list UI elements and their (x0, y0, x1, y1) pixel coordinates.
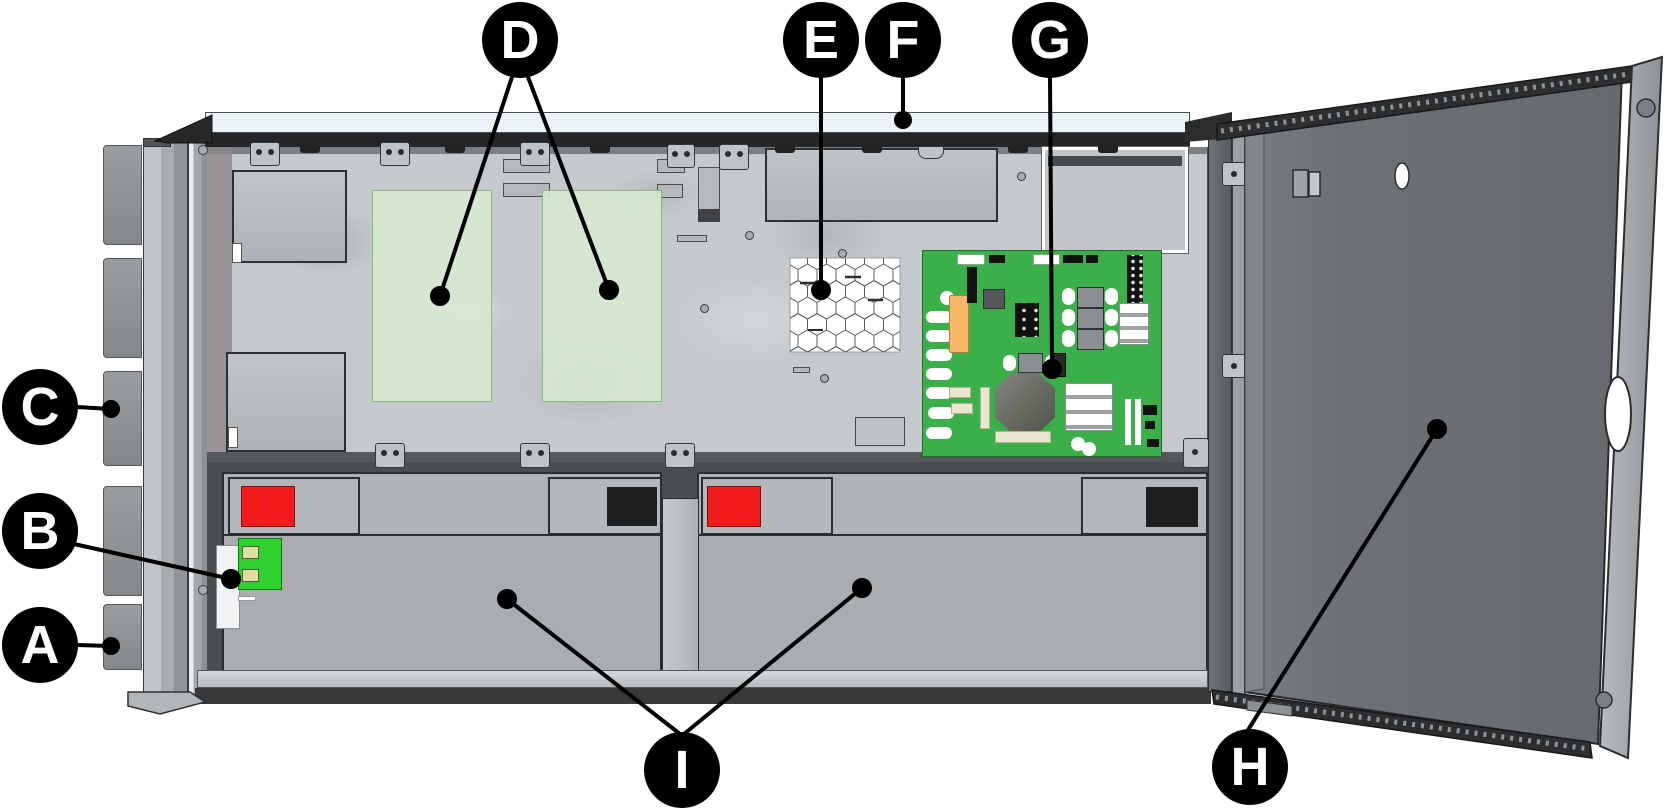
battery-1-terminal-black (607, 487, 657, 526)
backplate-tab (677, 235, 707, 242)
terminal-connector (1119, 303, 1149, 345)
callout-d: D (482, 2, 558, 78)
relay-cylinder (1105, 288, 1118, 305)
retaining-clip (250, 142, 280, 166)
transformer-1 (232, 170, 347, 263)
connector-terminal (242, 546, 259, 559)
door-panel (1212, 57, 1662, 758)
door-latch-inner (1309, 172, 1320, 196)
pcb-pad (926, 427, 952, 439)
callout-f: F (865, 2, 941, 78)
dip-switch-bank (1127, 255, 1143, 305)
rail-nub (445, 145, 465, 153)
callout-c: C (2, 369, 78, 445)
toroid-inductor (995, 373, 1055, 433)
door-bottom-tab (1247, 700, 1292, 716)
module-clip (918, 146, 944, 159)
door-hole (1395, 163, 1409, 189)
main-pcb (922, 250, 1162, 457)
capacitor-orange (949, 295, 969, 353)
left-wall-screw-bottom (198, 585, 208, 595)
retaining-clip (380, 142, 410, 166)
bottom-rail (195, 688, 1211, 704)
pin-header (1143, 405, 1157, 415)
pin-header (1145, 421, 1155, 429)
relay-body (1077, 287, 1104, 308)
ic-chip (983, 289, 1005, 309)
door-right-flange (1600, 57, 1662, 758)
relay-body (1077, 329, 1104, 350)
terminal-connector (1065, 383, 1113, 431)
mounting-fin-4 (103, 486, 142, 596)
rail-nub (300, 145, 320, 153)
transformer-2-notch (228, 427, 238, 448)
mounting-fin-3 (103, 371, 142, 466)
left-wall-screw-top (198, 145, 208, 155)
pin-header (989, 255, 1005, 263)
door-latch-outer (1293, 170, 1308, 197)
top-rail (205, 133, 1190, 147)
callout-b: B (2, 493, 78, 569)
flange-cap (143, 138, 171, 147)
battery-2-terminal-red (707, 486, 761, 527)
callout-e: E (783, 2, 859, 78)
display-module-slot (1048, 156, 1182, 166)
backplate-standoff-base (698, 209, 720, 222)
mounting-fin-2 (103, 258, 142, 358)
connector-terminal (242, 569, 259, 582)
battery-bracket (520, 443, 550, 468)
pin-header (1063, 255, 1083, 263)
capacitor-beige (949, 387, 971, 398)
mounting-fin-1 (103, 145, 142, 245)
capacitor-beige (980, 387, 990, 429)
relay-body (1018, 353, 1043, 373)
backplate-screw (1017, 172, 1026, 181)
relay-cylinder (1105, 330, 1118, 347)
connector-bracket (216, 545, 240, 629)
callout-g: G (1012, 2, 1088, 78)
connector-pin (238, 596, 256, 601)
battery-bracket (375, 443, 405, 468)
pcb-pad (926, 368, 952, 380)
retaining-clip (667, 144, 695, 168)
flange-bar (143, 138, 188, 697)
rail-nub (590, 145, 610, 153)
mounting-fin-5 (103, 604, 142, 670)
pcb-connector (1033, 254, 1060, 265)
door-face (1245, 70, 1622, 744)
enclosure-diagram: A B C D E F G H I (0, 0, 1665, 811)
door-top-edge (1217, 66, 1632, 140)
rail-nub (775, 145, 795, 153)
door-screw-top (1637, 99, 1655, 117)
pin-header (967, 267, 977, 303)
pin-header (1147, 439, 1159, 447)
leader-dot-h (1429, 421, 1445, 437)
bottom-edge-band (197, 670, 1208, 688)
battery-bracket (665, 443, 695, 468)
backplate-tab (793, 367, 810, 373)
capacitor-beige (995, 431, 1051, 443)
door-screw-bottom (1596, 692, 1612, 708)
top-edge-band (205, 112, 1190, 133)
callout-i: I (644, 732, 720, 808)
relay-cylinder (1062, 309, 1075, 326)
relay-cylinder (1003, 355, 1016, 371)
rail-nub (1098, 145, 1118, 153)
battery-1-terminal-red (241, 486, 295, 527)
pcb-pad (1082, 442, 1096, 456)
transformer-2 (226, 352, 346, 452)
backplate-screw (700, 304, 709, 313)
retaining-clip (719, 144, 749, 170)
door-hinge-strip (1245, 129, 1264, 692)
hinge-knuckle-top (1222, 162, 1246, 186)
backplate-standoff (698, 167, 720, 213)
pin-header (1086, 255, 1098, 263)
option-board-2 (542, 190, 662, 402)
backplate-screw (820, 374, 829, 383)
pcb-connector (957, 254, 985, 265)
relay-cylinder (1105, 309, 1118, 326)
corner-bracket (1183, 438, 1209, 468)
rail-nub (862, 145, 882, 153)
callout-a: A (2, 607, 78, 683)
backplate-screw (745, 231, 754, 240)
rail-nub (1008, 145, 1028, 153)
component-g-target (1053, 353, 1066, 377)
left-wall (188, 128, 208, 700)
transformer-1-notch (232, 243, 242, 263)
pcb-slot (1125, 399, 1131, 445)
door-handle-cutout (1605, 377, 1631, 451)
leader-line-h (1248, 429, 1437, 730)
hinge-bar (1232, 122, 1246, 698)
battery-2-terminal-black (1146, 487, 1198, 527)
right-wall (1208, 128, 1232, 692)
capacitor-beige (951, 403, 973, 414)
pcb-slot (1135, 399, 1141, 445)
battery-divider (662, 498, 699, 688)
relay-body (1077, 308, 1104, 329)
callout-h: H (1212, 729, 1288, 805)
retaining-clip (520, 142, 550, 166)
backplate-knockout (855, 417, 905, 446)
option-board-1 (372, 190, 492, 402)
power-supply-module (765, 148, 998, 222)
relay-cylinder (1062, 288, 1075, 305)
hinge-knuckle-mid (1222, 354, 1246, 378)
backplate-screw (838, 249, 847, 258)
pin-header-grid (1015, 303, 1039, 337)
relay-cylinder (1062, 330, 1075, 347)
